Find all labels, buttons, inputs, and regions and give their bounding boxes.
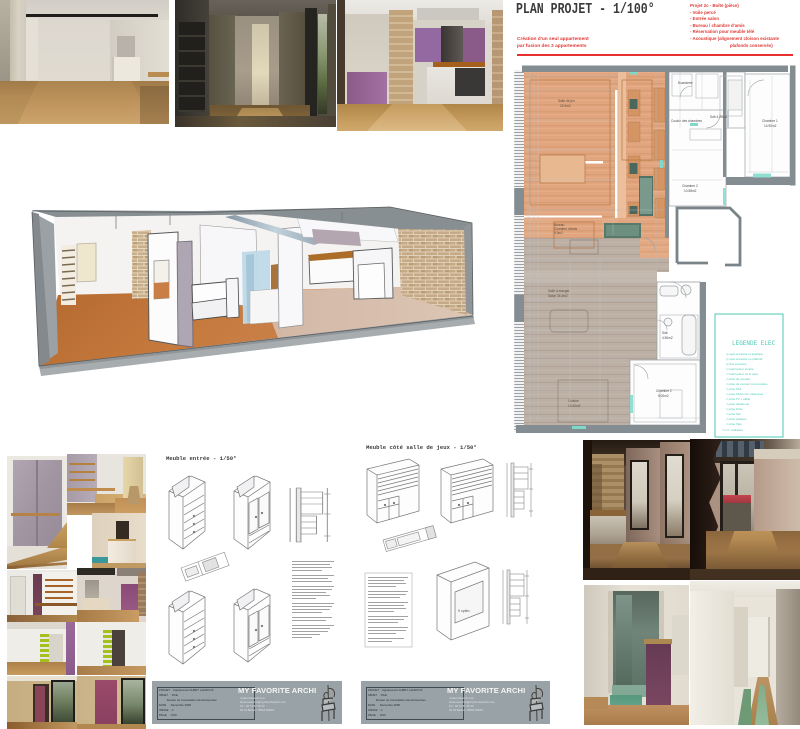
svg-text:Chambre 2: Chambre 2 bbox=[682, 184, 698, 188]
svg-text:9 optim.: 9 optim. bbox=[458, 609, 470, 613]
svg-text:Meuble côté salle de jeux - 1: Meuble côté salle de jeux - 1/50° bbox=[366, 444, 477, 451]
svg-text:14.95m2: 14.95m2 bbox=[764, 124, 777, 128]
svg-text:□ prise de courant: □ prise de courant bbox=[726, 377, 750, 381]
svg-text:9.3m2: 9.3m2 bbox=[554, 231, 563, 235]
svg-text:23.3m2: 23.3m2 bbox=[560, 104, 571, 108]
svg-text:□ prise frigo: □ prise frigo bbox=[726, 422, 742, 426]
svg-text:□ prise boîte: □ prise boîte bbox=[726, 407, 743, 411]
svg-text:10.58m2: 10.58m2 bbox=[684, 189, 697, 193]
svg-text:Meuble entrée - 1/50°: Meuble entrée - 1/50° bbox=[166, 455, 237, 462]
svg-text:□ prise 16A/1 les crédences: □ prise 16A/1 les crédences bbox=[726, 392, 764, 396]
svg-text:Cuisine: Cuisine bbox=[568, 399, 579, 403]
svg-text:Sdb: Sdb bbox=[662, 331, 668, 335]
svg-text:□ prise plaques: □ prise plaques bbox=[726, 417, 747, 421]
svg-text:□ prise TV + câble: □ prise TV + câble bbox=[726, 397, 751, 401]
svg-text:▭▭▭ radiateur: ▭▭▭ radiateur bbox=[722, 428, 743, 432]
svg-text:Salon 34.4m2: Salon 34.4m2 bbox=[548, 294, 568, 298]
svg-text:Couloir des chambres: Couloir des chambres bbox=[671, 119, 702, 123]
svg-text:LEGENDE ELEC: LEGENDE ELEC bbox=[732, 340, 776, 347]
svg-text:□ interrupteur va & vient: □ interrupteur va & vient bbox=[726, 372, 758, 376]
svg-text:□ prise four: □ prise four bbox=[726, 412, 741, 416]
svg-text:□ prise 16A: □ prise 16A bbox=[726, 387, 741, 391]
svg-text:◎ spot encastré en plafond: ◎ spot encastré en plafond bbox=[726, 357, 763, 361]
svg-text:Salle de jeu: Salle de jeu bbox=[558, 99, 575, 103]
svg-text:Sdb 4.80m2: Sdb 4.80m2 bbox=[710, 115, 727, 119]
svg-text:9.00m2: 9.00m2 bbox=[658, 394, 669, 398]
svg-text:Chambre 1: Chambre 1 bbox=[762, 119, 778, 123]
svg-text:4.50m2: 4.50m2 bbox=[662, 336, 673, 340]
svg-text:Buanderie: Buanderie bbox=[678, 81, 693, 85]
svg-text:◎ spot encastré et applique: ◎ spot encastré et applique bbox=[726, 352, 763, 356]
svg-text:□ prise de courant commandée: □ prise de courant commandée bbox=[726, 382, 768, 386]
svg-text:◎ flux encastré: ◎ flux encastré bbox=[726, 362, 747, 366]
svg-text:□ interrupteur simple: □ interrupteur simple bbox=[726, 367, 754, 371]
svg-text:Chambre 2: Chambre 2 bbox=[656, 389, 672, 393]
svg-text:Salle à manger: Salle à manger bbox=[548, 289, 570, 293]
svg-text:□ prise téléphone: □ prise téléphone bbox=[726, 402, 749, 406]
